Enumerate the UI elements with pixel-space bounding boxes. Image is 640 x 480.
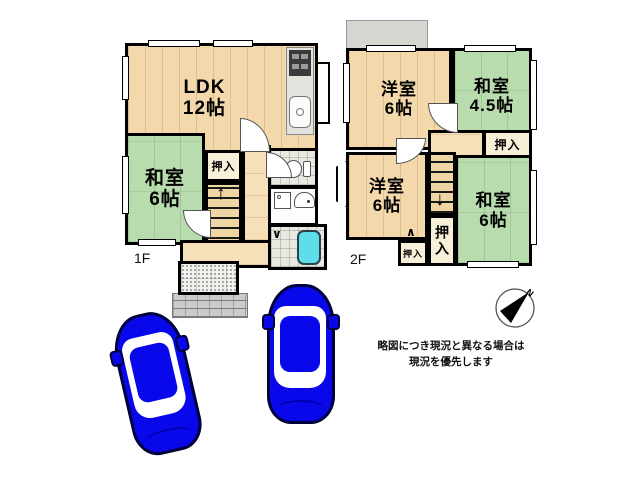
kitchen-bay-window [316, 62, 330, 124]
car-right [267, 284, 335, 424]
sink-icon [289, 96, 311, 128]
kitchen-counter [286, 47, 314, 135]
room-washitsu-1f-label: 和室 6帖 [145, 168, 185, 211]
closet-oshiire-small-label: 押入 [403, 247, 423, 260]
window [530, 170, 537, 245]
floor1-plan: LDK 12帖 和室 6帖 押入 ↑ [120, 38, 338, 320]
car-mirror-left [262, 314, 275, 330]
genkan-entrance [178, 261, 239, 295]
window [122, 156, 129, 214]
closet-door-fold-icon: ∧ [406, 226, 416, 238]
room-washroom [268, 186, 318, 226]
window [122, 56, 129, 100]
closet-oshiire-1f: 押入 [205, 150, 242, 182]
bathroom-folding-door-icon: ∨ [272, 228, 282, 240]
room-yoshitsu-bottom-label: 洋室 6帖 [369, 177, 405, 215]
window [467, 261, 519, 268]
car-trunk-line [277, 400, 325, 416]
closet-oshiire-side-label: 押入 [432, 225, 452, 257]
floor2-plan: 洋室 6帖 和室 4.5帖 押入 ↓ 洋室 6帖 [336, 18, 540, 270]
closet-oshiire-top-label: 押入 [494, 136, 520, 153]
floor2-label: 2F [350, 251, 366, 267]
room-ldk-label: LDK 12帖 [183, 77, 260, 120]
disclaimer-line1: 略図につき現況と異なる場合は [355, 339, 547, 355]
window [366, 45, 416, 52]
window [530, 60, 537, 130]
washbasin-icon [294, 192, 315, 208]
bay-window-2f [336, 160, 348, 208]
room-washitsu6-label: 和室 6帖 [476, 191, 512, 229]
room-washitsu45-label: 和室 4.5帖 [470, 77, 515, 115]
stairs-up-arrow-icon: ↑ [216, 184, 226, 203]
washing-machine-icon [274, 192, 291, 209]
window [213, 40, 253, 47]
compass-icon: N [492, 284, 538, 330]
bathtub-icon [297, 230, 321, 265]
disclaimer-line2: 現況を優先します [355, 355, 547, 371]
closet-oshiire-1f-label: 押入 [212, 158, 236, 174]
window [148, 40, 200, 47]
room-washitsu6-2f: 和室 6帖 [455, 155, 532, 266]
closet-oshiire-top-2f: 押入 [483, 130, 532, 158]
window [138, 239, 176, 246]
car-left [107, 306, 207, 460]
window [464, 45, 516, 52]
stairs-down-arrow-icon: ↓ [435, 190, 445, 209]
room-yoshitsu-top-label: 洋室 6帖 [381, 80, 417, 118]
porch-steps [172, 293, 248, 318]
disclaimer-text: 略図につき現況と異なる場合は 現況を優先します [355, 339, 547, 371]
closet-oshiire-side-2f: 押入 [428, 215, 456, 266]
floor1-label: 1F [134, 250, 150, 266]
floor-plan-page: LDK 12帖 和室 6帖 押入 ↑ [0, 0, 640, 480]
window [343, 63, 350, 123]
car-mirror-right [327, 314, 340, 330]
closet-oshiire-small-2f: 押入 [398, 240, 428, 266]
car-roof [280, 316, 320, 372]
stove-icon [289, 50, 311, 76]
car-mirror-right [174, 334, 190, 353]
